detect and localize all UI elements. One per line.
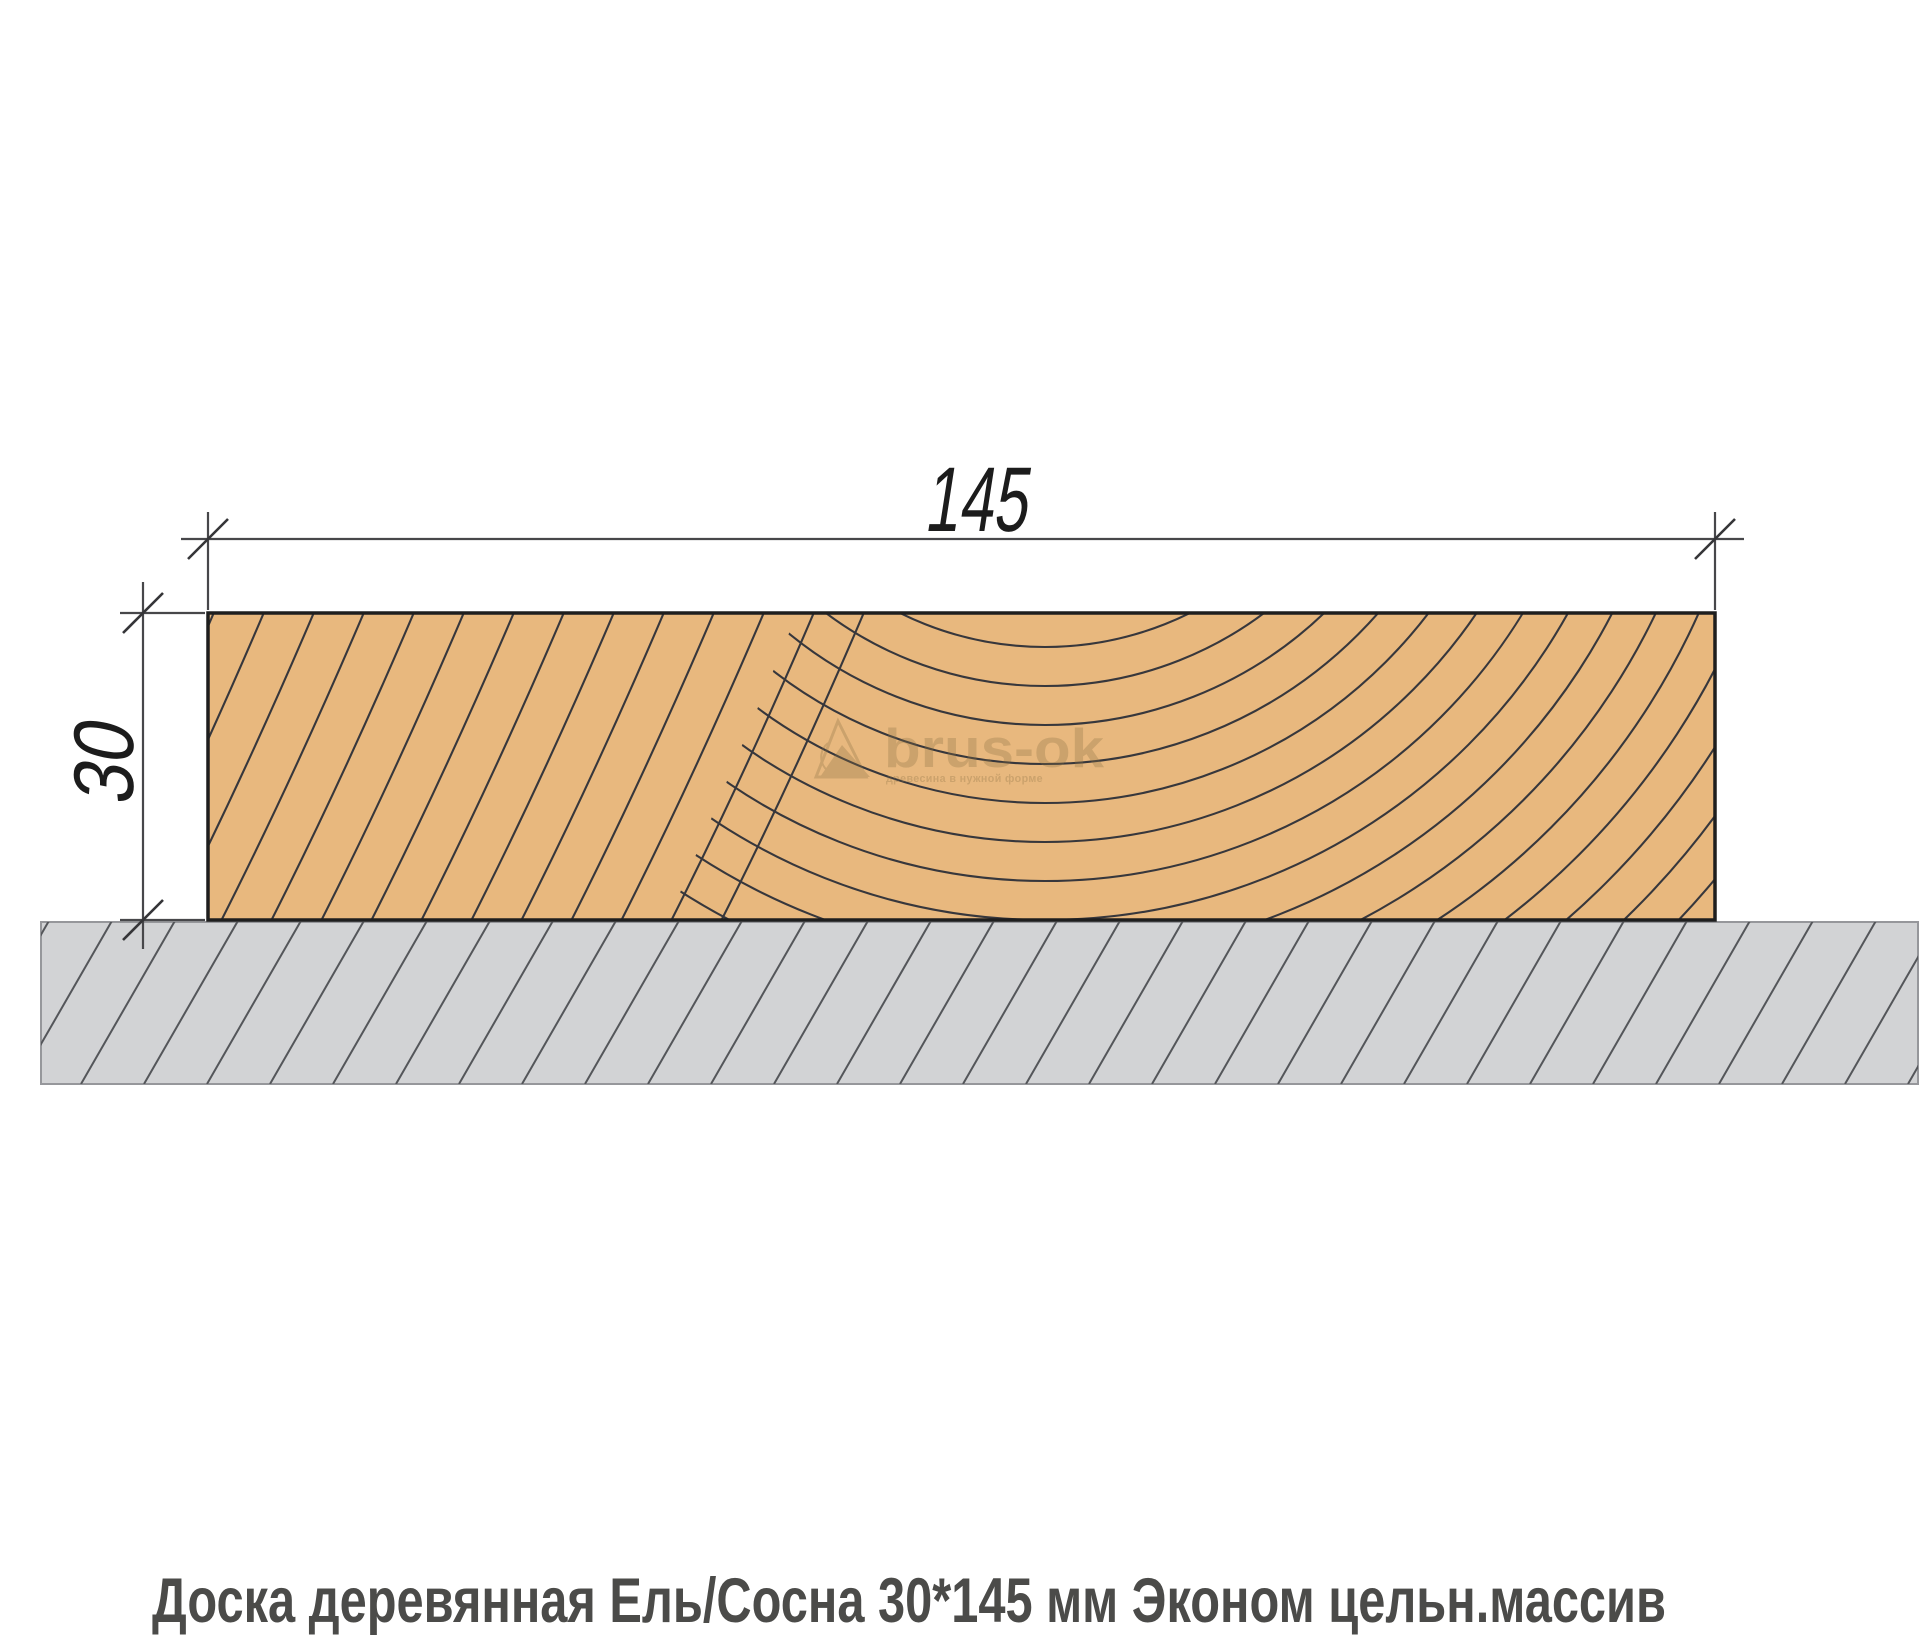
svg-text:145: 145 (921, 448, 1040, 551)
svg-text:brus-ok: brus-ok (884, 717, 1104, 779)
svg-text:30: 30 (56, 710, 151, 810)
svg-text:древесина в нужной форме: древесина в нужной форме (886, 773, 1043, 785)
svg-text:Доска деревянная Ель/Сосна 30*: Доска деревянная Ель/Сосна 30*145 мм Эко… (152, 1566, 1666, 1636)
